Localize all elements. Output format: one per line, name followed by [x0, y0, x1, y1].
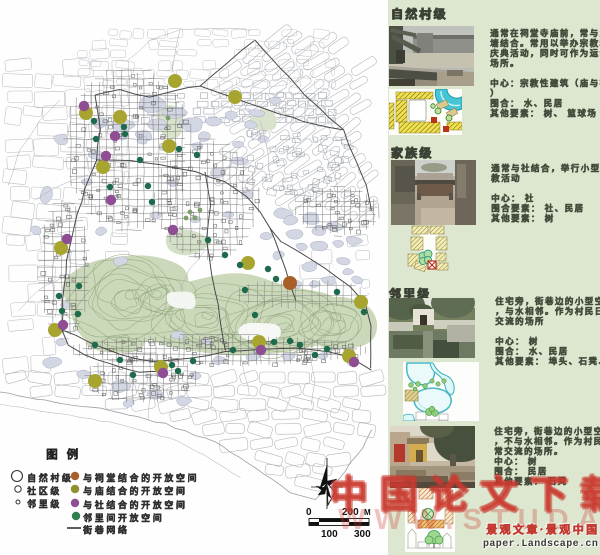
svg-text:100: 100: [321, 529, 338, 540]
svg-text:0: 0: [306, 507, 312, 518]
